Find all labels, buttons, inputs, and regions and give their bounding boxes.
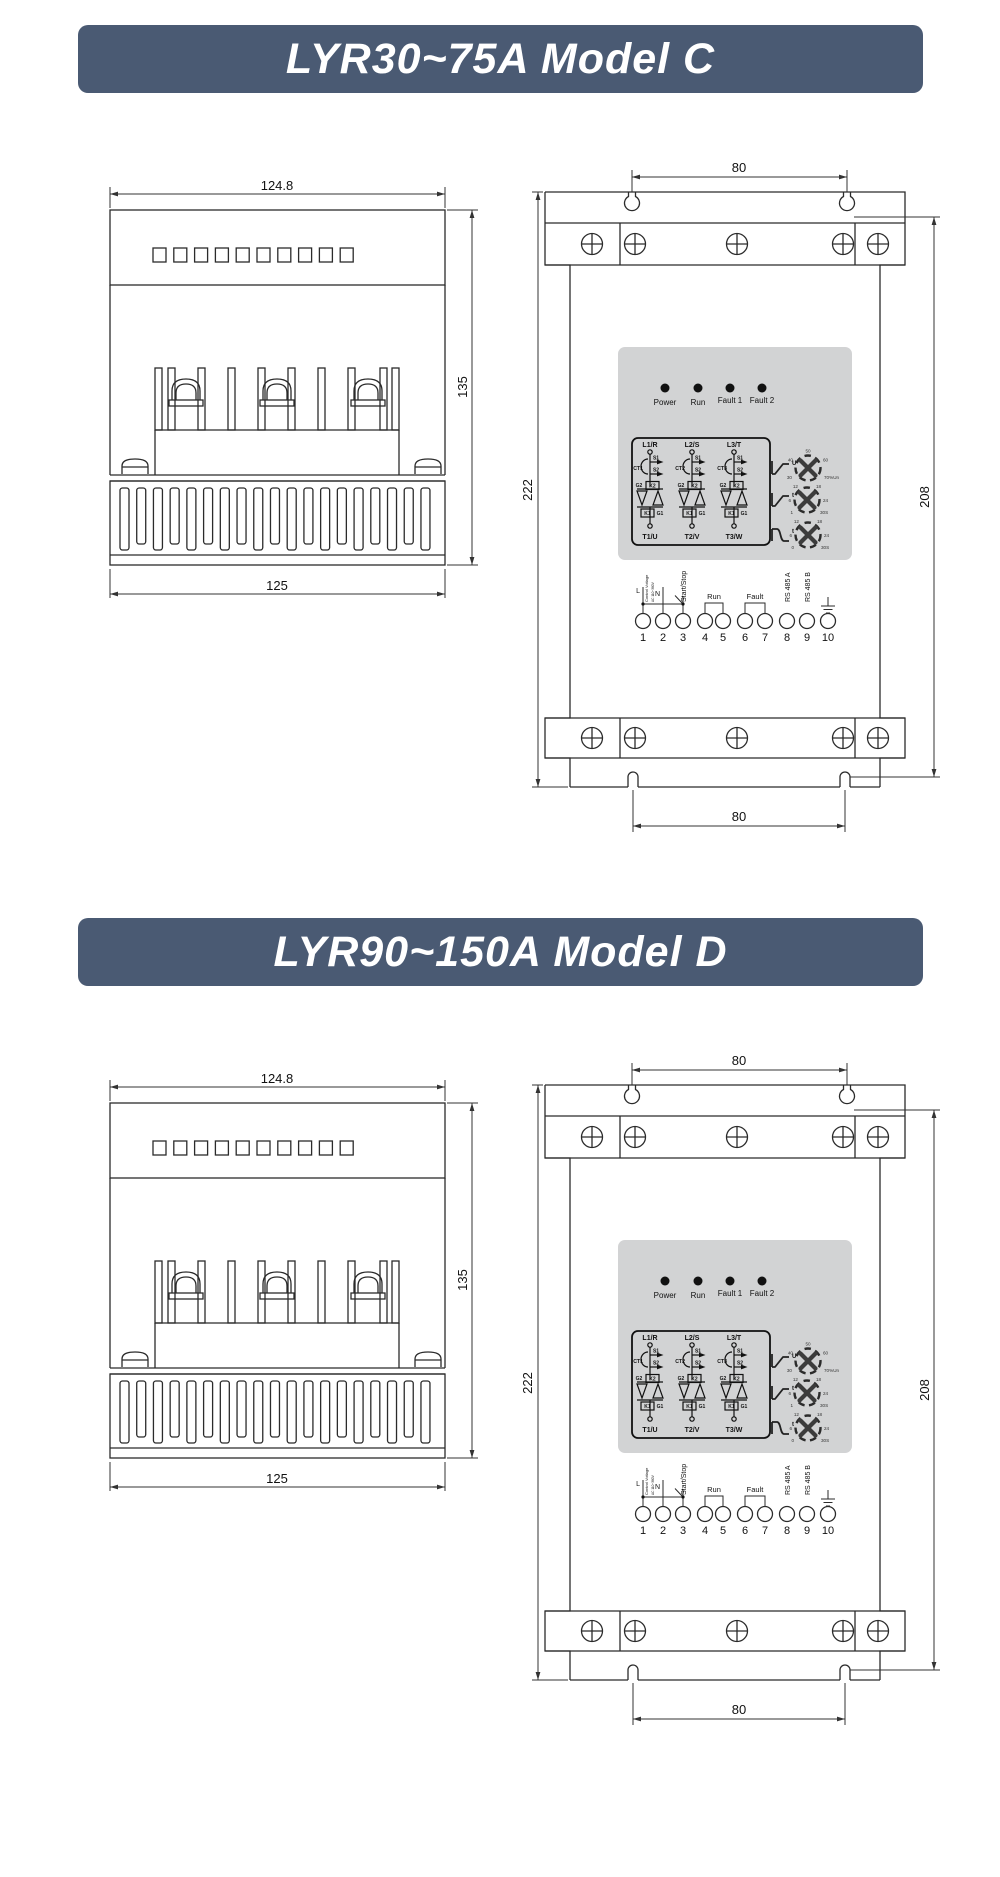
ct-label: CT2 [675, 466, 685, 472]
terminal-barrier [198, 368, 205, 430]
vent-slots [153, 248, 353, 262]
dim-width-top: 124.8 [110, 178, 445, 208]
terminal-number: 10 [822, 1525, 834, 1537]
screw-icon [833, 1621, 854, 1642]
screw-icon [582, 1621, 603, 1642]
dial-tick: 0 [791, 545, 794, 550]
dim-hole-spacing-bottom: 80 [633, 790, 845, 832]
tap-s1-label: S1 [737, 456, 743, 462]
terminal-3 [676, 1507, 691, 1522]
fault2-led [758, 1277, 767, 1286]
run-led-label: Run [691, 1291, 706, 1300]
vent-slot [278, 248, 291, 262]
dial-axis-label: t [792, 493, 794, 499]
dim-width-bottom: 125 [110, 569, 445, 598]
gate-g1-label: G1 [657, 511, 664, 517]
vent-slots [153, 1141, 353, 1155]
terminal-number: 2 [660, 1525, 666, 1537]
gate-g2-label: G2 [678, 1376, 685, 1382]
dim-height-label: 222 [520, 1372, 535, 1394]
heatsink-fin [321, 488, 330, 550]
dim-hole-spacing-top-label: 80 [732, 160, 746, 175]
heatsink-fin [270, 1381, 279, 1437]
heatsink-fin [187, 1381, 196, 1443]
heatsink-fin [153, 1381, 162, 1443]
terminal-number: 8 [784, 1525, 790, 1537]
terminal-number: 7 [762, 1525, 768, 1537]
phase-output-label: T1/U [642, 534, 657, 541]
vent-slot [236, 248, 249, 262]
gate-g2-label: G2 [720, 483, 727, 489]
terminal-barrier [155, 1261, 162, 1323]
vent-slot [299, 1141, 312, 1155]
heatsink-fin [137, 488, 146, 544]
ground-icon [821, 1490, 835, 1506]
dim-height: 135 [447, 1103, 478, 1458]
terminal-2 [656, 614, 671, 629]
tap-s1-label: S1 [653, 1349, 659, 1355]
terminal-9 [800, 1507, 815, 1522]
ct-label: CT3 [717, 466, 727, 472]
heatsink-fin [170, 488, 179, 544]
terminal-strip: L N Control Voltage AC 110~380V Start/St… [636, 571, 836, 644]
dim-width-bottom: 125 [110, 1462, 445, 1491]
terminal-number: 2 [660, 632, 666, 644]
dial-tick: 24 [824, 1426, 830, 1431]
heatsink-fin [388, 1381, 397, 1443]
dial-tick: 70%Un [824, 1368, 840, 1373]
dim-hole-height: 208 [850, 217, 940, 777]
dial-tick: 12 [793, 484, 799, 489]
screw-icon [727, 1621, 748, 1642]
start-stop-label: Start/Stop [681, 571, 688, 602]
terminal-strip: L N Control Voltage AC 110~380V Start/St… [636, 1464, 836, 1537]
terminal-5 [716, 614, 731, 629]
dial-tick: 6 [788, 1391, 791, 1396]
terminal-barrier [392, 368, 399, 430]
dial-tick: 6 [788, 498, 791, 503]
terminal-number: 4 [702, 632, 708, 644]
phase-output-label: T3/W [726, 534, 743, 541]
ct-label: CT1 [633, 466, 643, 472]
vent-slot [299, 248, 312, 262]
heatsink-fin [421, 488, 430, 550]
rs485-b-label: RS 485 B [805, 1465, 812, 1495]
run-led [694, 1277, 703, 1286]
fault1-led-label: Fault 1 [718, 1289, 743, 1298]
dim-width-top-label: 124.8 [261, 1071, 294, 1086]
terminal-barrier [258, 368, 265, 430]
terminal-number: 8 [784, 632, 790, 644]
phase-input-label: L3/T [727, 442, 742, 449]
terminal-7 [758, 614, 773, 629]
heatsink-fin [337, 488, 346, 544]
terminal-4 [698, 614, 713, 629]
gate-g1-label: G1 [657, 1404, 664, 1410]
heatsink-fin [421, 1381, 430, 1443]
dim-hole-spacing-top: 80 [632, 1053, 847, 1085]
terminal-number: 4 [702, 1525, 708, 1537]
dial-tick: 12 [794, 1412, 800, 1417]
heatsink-fin [254, 488, 263, 550]
dial-tick: 18 [817, 1412, 823, 1417]
power-led [661, 384, 670, 393]
terminal-7 [758, 1507, 773, 1522]
dim-height: 135 [447, 210, 478, 565]
heatsink-fin [187, 488, 196, 550]
fault2-led-label: Fault 2 [750, 396, 775, 405]
vent-slot [215, 248, 228, 262]
terminal-number: 3 [680, 632, 686, 644]
dial-tick: 30S [821, 545, 829, 550]
vent-slot [153, 248, 166, 262]
fault1-led [726, 384, 735, 393]
heatsink-fin [304, 488, 313, 544]
phase-output-label: T2/V [685, 1427, 700, 1434]
terminal-barrier [380, 368, 387, 430]
dial-tick: 50 [805, 1342, 811, 1347]
terminal-8 [780, 614, 795, 629]
dial-tick: 6 [789, 533, 792, 538]
spec-sheet-page: LYR30~75A Model C 124.8 [0, 0, 1000, 1877]
vent-slot [319, 1141, 332, 1155]
screw-icon [582, 234, 603, 255]
vent-slot [174, 1141, 187, 1155]
screw-icon [868, 1621, 889, 1642]
dial-tick: 6 [789, 1426, 792, 1431]
fault1-led [726, 1277, 735, 1286]
terminal-barrier [155, 368, 162, 430]
terminal-number: 9 [804, 1525, 810, 1537]
dim-width-top-label: 124.8 [261, 178, 294, 193]
tap-s2-label: S2 [737, 1361, 743, 1367]
dial-axis-label: t [792, 1386, 794, 1392]
gate-g2-label: G2 [678, 483, 685, 489]
dim-height: 222 [520, 192, 568, 787]
heatsink-fin [404, 1381, 413, 1437]
heatsink-fin [220, 1381, 229, 1443]
terminal-barrier [318, 368, 325, 430]
terminal-10 [821, 614, 836, 629]
tap-s2-label: S2 [653, 1361, 659, 1367]
heatsink-fin [220, 488, 229, 550]
dim-hole-height: 208 [850, 1110, 940, 1670]
gate-g2-label: G2 [636, 1376, 643, 1382]
terminal-6 [738, 614, 753, 629]
dim-height-label: 135 [455, 1269, 470, 1291]
dim-width-bottom-label: 125 [266, 578, 288, 593]
dim-hole-spacing-top: 80 [632, 160, 847, 192]
ct-label: CT3 [717, 1359, 727, 1365]
mount-notch [628, 772, 638, 787]
heatsink-fin [404, 488, 413, 544]
terminal-number: 3 [680, 1525, 686, 1537]
terminal-circles: 12345678910 [636, 1507, 836, 1538]
heatsink-fin [388, 488, 397, 550]
side-view-drawing: 124.8 [70, 1043, 490, 1513]
dial-tick: 24 [823, 498, 829, 503]
phase-input-label: L2/S [685, 442, 700, 449]
dial-tick: 30 [787, 475, 793, 480]
phase-input-label: L1/R [642, 1335, 657, 1342]
tap-s1-label: S1 [653, 456, 659, 462]
screw-icon [833, 1127, 854, 1148]
mount-notch [840, 1665, 850, 1680]
control-voltage-label: Control Voltage [644, 574, 649, 602]
base-cap [122, 459, 148, 474]
run-label: Run [707, 592, 721, 601]
dim-hole-height-label: 208 [917, 486, 932, 508]
screw-icon [727, 1127, 748, 1148]
phase-input-label: L1/R [642, 442, 657, 449]
gate-g1-label: G1 [741, 511, 748, 517]
terminal-barrier [258, 1261, 265, 1323]
mount-notch [628, 1665, 638, 1680]
terminal-number: 6 [742, 632, 748, 644]
screw-icon [582, 1127, 603, 1148]
heatsink-fin [354, 1381, 363, 1443]
heatsink-fin [254, 1381, 263, 1443]
terminal-barrier [380, 1261, 387, 1323]
section-title: LYR90~150A Model D [273, 928, 727, 977]
keyhole-slot [840, 192, 855, 211]
screw-icon [625, 234, 646, 255]
heatsink [110, 1374, 445, 1458]
vent-slot [174, 248, 187, 262]
tap-s1-label: S1 [695, 1349, 701, 1355]
base-cap [415, 1352, 441, 1367]
dim-hole-height-label: 208 [917, 1379, 932, 1401]
tap-s1-label: S1 [737, 1349, 743, 1355]
section-title-banner: LYR30~75A Model C [78, 25, 923, 93]
heatsink-fin [337, 1381, 346, 1437]
dial-tick: 24 [823, 1391, 829, 1396]
front-view-drawing: 80 [520, 150, 1000, 850]
gate-g1-label: G1 [699, 1404, 706, 1410]
vent-slot [215, 1141, 228, 1155]
base-cap [415, 459, 441, 474]
k2-label: K2 [691, 484, 698, 490]
dial-tick: 30 [787, 1368, 793, 1373]
screw-icon [868, 1127, 889, 1148]
tap-s2-label: S2 [737, 468, 743, 474]
heatsink-fins [120, 488, 430, 550]
dial-tick: 30S [821, 1438, 829, 1443]
dial-tick: 12 [793, 1377, 799, 1382]
heatsink-fin [153, 488, 162, 550]
heatsink-fin [270, 488, 279, 544]
gate-g1-label: G1 [699, 511, 706, 517]
tap-s1-label: S1 [695, 456, 701, 462]
vent-slot [257, 248, 270, 262]
k2-label: K2 [649, 484, 656, 490]
heatsink-fin [371, 1381, 380, 1437]
section-title: LYR30~75A Model C [286, 35, 715, 84]
terminal-5 [716, 1507, 731, 1522]
screw-icon [833, 728, 854, 749]
dial-tick: 30S [820, 1403, 828, 1408]
terminal-barriers [155, 1261, 399, 1323]
phase-input-label: L2/S [685, 1335, 700, 1342]
screw-icon [727, 728, 748, 749]
vent-slot [340, 248, 353, 262]
tap-s2-label: S2 [695, 1361, 701, 1367]
terminal-6 [738, 1507, 753, 1522]
model-section: LYR30~75A Model C 124.8 [0, 0, 1000, 893]
neutral-label: N [655, 1484, 660, 1491]
screw-icon [868, 728, 889, 749]
dial-axis-label: t [792, 1422, 794, 1428]
dial-tick: 1 [790, 1403, 793, 1408]
dial-tick: 60 [823, 1351, 829, 1356]
dial-tick: 60 [823, 458, 829, 463]
vent-slot [153, 1141, 166, 1155]
terminal-barrier [198, 1261, 205, 1323]
run-label: Run [707, 1485, 721, 1494]
tap-s2-label: S2 [653, 468, 659, 474]
line-label: L [636, 1481, 640, 1488]
side-body [110, 1103, 445, 1458]
vent-slot [195, 1141, 208, 1155]
ct-label: CT1 [633, 1359, 643, 1365]
heatsink-fin [287, 1381, 296, 1443]
terminal-3 [676, 614, 691, 629]
terminal-number: 5 [720, 1525, 726, 1537]
dim-hole-spacing-bottom: 80 [633, 1683, 845, 1725]
vent-slot [257, 1141, 270, 1155]
front-view-drawing: 80 [520, 1043, 1000, 1743]
screw-icon [582, 728, 603, 749]
terminal-number: 1 [640, 1525, 646, 1537]
run-led [694, 384, 703, 393]
heatsink-fin [287, 488, 296, 550]
dial-tick: 18 [817, 519, 823, 524]
vent-slot [195, 248, 208, 262]
rs485-a-label: RS 485 A [785, 572, 792, 602]
keyhole-slot [625, 192, 640, 211]
vent-slot [319, 248, 332, 262]
terminal-barrier [228, 1261, 235, 1323]
start-stop-label: Start/Stop [681, 1464, 688, 1495]
k2-label: K2 [733, 484, 740, 490]
heatsink-fin [170, 1381, 179, 1437]
power-led-label: Power [654, 1291, 677, 1300]
dim-width-bottom-label: 125 [266, 1471, 288, 1486]
base-cap [122, 1352, 148, 1367]
terminal-barriers [155, 368, 399, 430]
mount-notch [840, 772, 850, 787]
terminal-8 [780, 1507, 795, 1522]
terminal-number: 6 [742, 1525, 748, 1537]
phase-output-label: T3/W [726, 1427, 743, 1434]
control-voltage-label: Control Voltage [644, 1467, 649, 1495]
terminal-number: 1 [640, 632, 646, 644]
vent-slot [340, 1141, 353, 1155]
heatsink-fin [354, 488, 363, 550]
dim-height: 222 [520, 1085, 568, 1680]
heatsink-fin [204, 1381, 213, 1437]
terminal-barrier [392, 1261, 399, 1323]
keyhole-slot [840, 1085, 855, 1104]
terminal-number: 9 [804, 632, 810, 644]
vent-slot [278, 1141, 291, 1155]
dial-tick: 30S [820, 510, 828, 515]
screw-icon [625, 1127, 646, 1148]
screw-icon [868, 234, 889, 255]
terminal-9 [800, 614, 815, 629]
dial-tick: 70%Un [824, 475, 840, 480]
k2-label: K2 [691, 1377, 698, 1383]
dial-axis-label: t [792, 529, 794, 535]
k2-label: K2 [733, 1377, 740, 1383]
terminal-1 [636, 1507, 651, 1522]
fault2-led [758, 384, 767, 393]
terminal-barrier [318, 1261, 325, 1323]
control-voltage-sub-label: AC 110~380V [651, 1474, 655, 1495]
heatsink-fin [237, 488, 246, 544]
fault2-led-label: Fault 2 [750, 1289, 775, 1298]
dim-width-top: 124.8 [110, 1071, 445, 1101]
rs485-b-label: RS 485 B [805, 572, 812, 602]
gate-g1-label: G1 [741, 1404, 748, 1410]
dim-hole-spacing-bottom-label: 80 [732, 1702, 746, 1717]
heatsink-fin [321, 1381, 330, 1443]
terminal-1 [636, 614, 651, 629]
terminal-number: 10 [822, 632, 834, 644]
run-led-label: Run [691, 398, 706, 407]
heatsink-fin [137, 1381, 146, 1437]
heatsink-fin [304, 1381, 313, 1437]
screw-icon [727, 234, 748, 255]
vent-slot [236, 1141, 249, 1155]
fault-label: Fault [747, 1485, 765, 1494]
phase-output-label: T2/V [685, 534, 700, 541]
terminal-barrier [228, 368, 235, 430]
heatsink-fin [120, 1381, 129, 1443]
power-led [661, 1277, 670, 1286]
model-section: LYR90~150A Model D 124.8 [0, 893, 1000, 1786]
fault1-led-label: Fault 1 [718, 396, 743, 405]
ground-icon [821, 597, 835, 613]
neutral-label: N [655, 591, 660, 598]
screw-icon [625, 728, 646, 749]
control-voltage-sub-label: AC 110~380V [651, 581, 655, 602]
section-title-banner: LYR90~150A Model D [78, 918, 923, 986]
dial-tick: 24 [824, 533, 830, 538]
line-label: L [636, 588, 640, 595]
gate-g2-label: G2 [720, 1376, 727, 1382]
dial-tick: 18 [816, 484, 822, 489]
gate-g2-label: G2 [636, 483, 643, 489]
heatsink-fin [204, 488, 213, 544]
phase-output-label: T1/U [642, 1427, 657, 1434]
dial-tick: 1 [790, 510, 793, 515]
rs485-a-label: RS 485 A [785, 1465, 792, 1495]
phase-input-label: L3/T [727, 1335, 742, 1342]
heatsink-fin [120, 488, 129, 550]
screw-icon [833, 234, 854, 255]
side-body [110, 210, 445, 565]
fault-label: Fault [747, 592, 765, 601]
dim-hole-spacing-bottom-label: 80 [732, 809, 746, 824]
dim-height-label: 222 [520, 479, 535, 501]
screw-icon [625, 1621, 646, 1642]
k2-label: K2 [649, 1377, 656, 1383]
terminal-circles: 12345678910 [636, 614, 836, 645]
dial-tick: 50 [805, 449, 811, 454]
terminal-2 [656, 1507, 671, 1522]
heatsink-fin [237, 1381, 246, 1437]
